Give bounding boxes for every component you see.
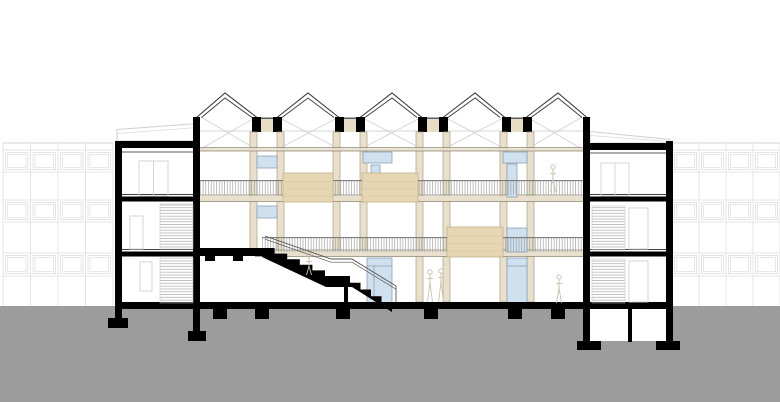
building-section-svg [0,0,780,402]
figure [427,270,433,302]
figure [556,275,562,303]
section-drawing-canvas [0,0,780,402]
context-building-left [3,143,113,306]
context-building-right [672,143,780,306]
